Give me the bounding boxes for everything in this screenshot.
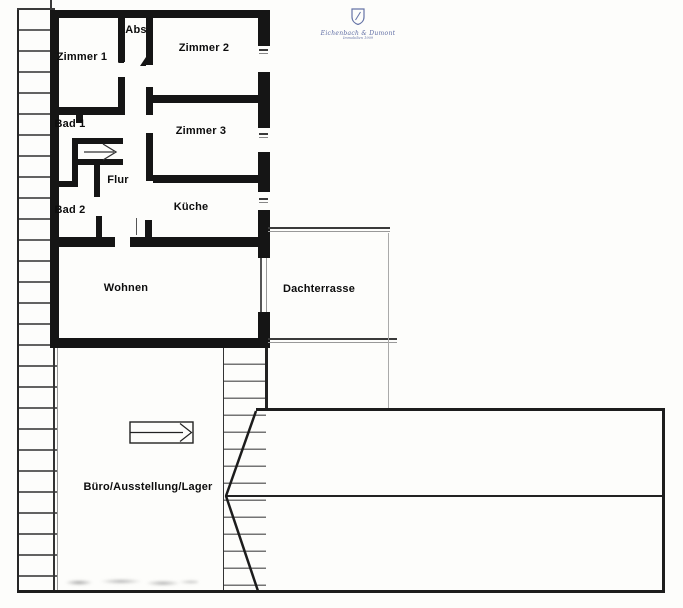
- room-label-dachterrasse: Dachterrasse: [283, 283, 355, 295]
- terrace-right-line: [388, 233, 389, 409]
- wall-zimmer3-left-mid: [146, 133, 153, 181]
- wall-entry-left: [53, 237, 115, 247]
- plan-bottom-line: [17, 590, 665, 593]
- wall-right-segment: [258, 10, 270, 46]
- wall-zimmer1-bottom: [50, 107, 123, 115]
- logo-tagline: Immobilien 1909: [308, 37, 408, 41]
- door-stub-kueche: [145, 220, 152, 238]
- terrace-bottom-line: [268, 338, 397, 340]
- window-mark: [259, 198, 268, 200]
- terrace-top-line: [268, 231, 390, 232]
- terrace-door-glazing: [266, 258, 267, 312]
- wall-wohnen-bottom: [50, 338, 270, 348]
- plan-line-work: [0, 0, 683, 608]
- buero-arrow-head-icon: [180, 424, 192, 442]
- roof-right-line: [662, 408, 665, 593]
- window-mark: [259, 133, 268, 135]
- terrace-bottom-line: [268, 342, 397, 343]
- wall-right-segment: [258, 152, 270, 192]
- wall-right-segment: [258, 210, 270, 258]
- lower-roof-hatch-strip: [223, 348, 266, 590]
- window-mark: [259, 137, 268, 138]
- room-label-bad1: Bad 1: [55, 118, 86, 130]
- window-mark: [259, 202, 268, 203]
- roof-top-line: [256, 408, 665, 411]
- door-stub-bad2: [96, 216, 102, 238]
- wall-right-lower-line: [265, 348, 268, 410]
- wall-abs-left: [118, 18, 125, 62]
- buero-left-line: [57, 348, 58, 591]
- buero-arrow-symbol: [130, 422, 193, 443]
- wall-zimmer3-left-upper: [146, 87, 153, 115]
- door-leaf-mark: [136, 218, 137, 235]
- scan-smudge: [58, 576, 198, 588]
- room-label-flur: Flur: [107, 174, 129, 186]
- wall-zimmer2-bottom: [153, 95, 270, 103]
- room-label-wohnen: Wohnen: [104, 282, 148, 294]
- wall-bad1-bottom: [53, 181, 78, 187]
- wall-top: [50, 10, 270, 18]
- wall-abs-right: [146, 18, 153, 65]
- terrace-top-line: [268, 227, 390, 229]
- shield-icon: [351, 8, 365, 25]
- window-mark: [259, 53, 268, 54]
- terrace-door-glazing: [260, 258, 262, 312]
- company-logo: Eichenbach & Dumont Immobilien 1909: [308, 8, 408, 41]
- wall-entry-right: [130, 237, 258, 247]
- window-mark: [259, 49, 268, 51]
- room-label-abs: Abs: [125, 24, 146, 36]
- wall-flur-bad2: [94, 163, 100, 197]
- room-label-zimmer3: Zimmer 3: [176, 125, 227, 137]
- room-label-bad2: Bad 2: [55, 204, 86, 216]
- stairs-arrow-head-icon: [103, 144, 116, 160]
- room-label-kueche: Küche: [174, 201, 209, 213]
- wall-zimmer3-bottom: [153, 175, 270, 183]
- wall-stairs-top: [72, 138, 123, 144]
- wall-stairs-left: [72, 138, 78, 187]
- buero-left-line: [53, 348, 55, 591]
- room-label-zimmer1: Zimmer 1: [57, 51, 108, 63]
- room-label-zimmer2: Zimmer 2: [179, 42, 230, 54]
- roof-ridge-line: [225, 495, 665, 497]
- top-tick-line: [50, 0, 52, 10]
- floor-plan: Zimmer 1 Zimmer 2 Abs Zimmer 3 Bad 1 Flu…: [0, 0, 683, 608]
- room-label-buero: Büro/Ausstellung/Lager: [83, 481, 212, 493]
